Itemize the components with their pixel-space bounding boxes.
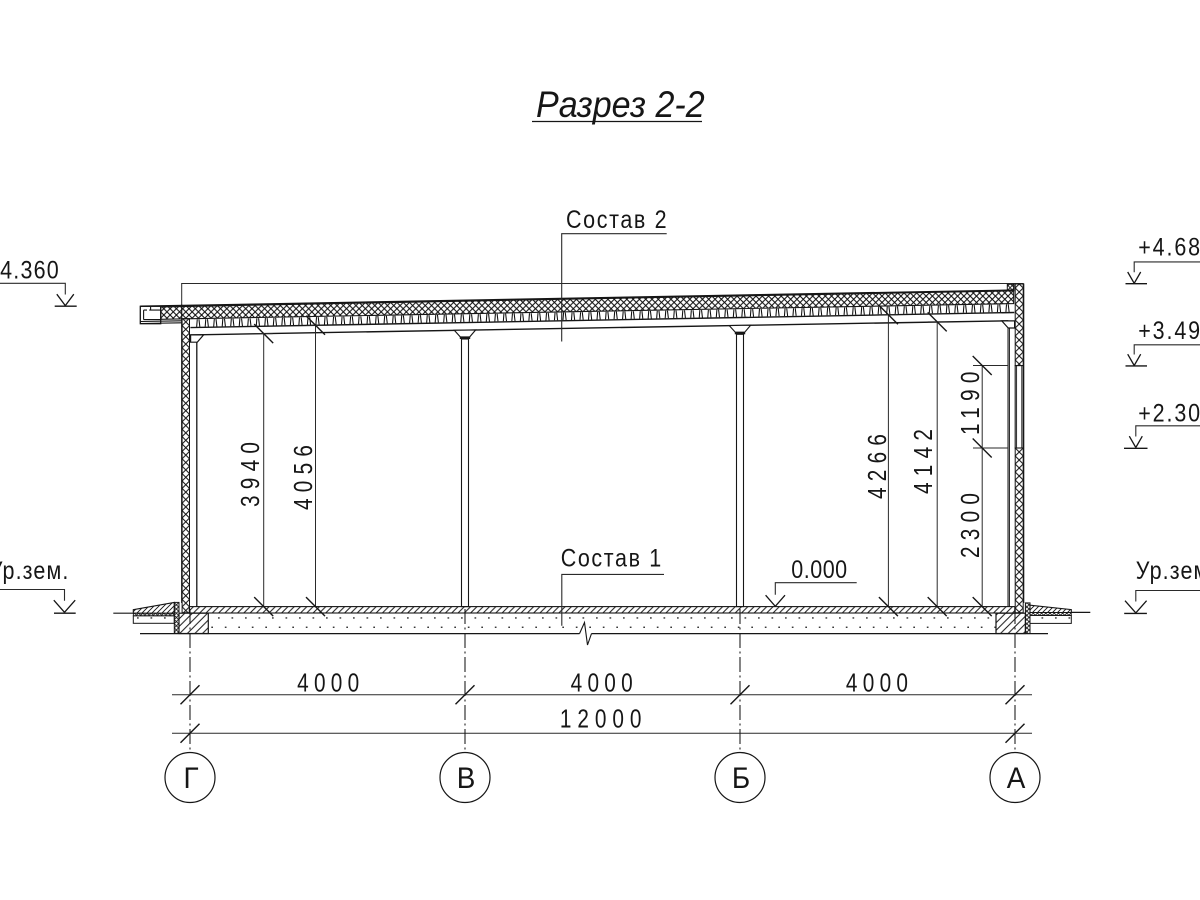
svg-text:А: А bbox=[1007, 762, 1026, 795]
svg-text:Разрез 2-2: Разрез 2-2 bbox=[536, 84, 705, 126]
svg-text:4266: 4266 bbox=[863, 428, 892, 499]
svg-text:В: В bbox=[457, 762, 476, 795]
svg-text:+4.68: +4.68 bbox=[1138, 233, 1200, 261]
svg-text:Ур.зем.: Ур.зем. bbox=[1136, 557, 1200, 585]
svg-text:2300: 2300 bbox=[956, 487, 985, 558]
svg-text:12000: 12000 bbox=[560, 704, 647, 733]
svg-text:Состав 2: Состав 2 bbox=[566, 206, 668, 234]
svg-text:4142: 4142 bbox=[909, 423, 938, 494]
svg-text:4000: 4000 bbox=[297, 668, 364, 697]
svg-text:Б: Б bbox=[732, 762, 750, 795]
svg-text:+3.49: +3.49 bbox=[1138, 316, 1200, 344]
svg-text:1190: 1190 bbox=[956, 365, 985, 435]
svg-text:0.000: 0.000 bbox=[791, 555, 847, 583]
svg-text:+4.360: +4.360 bbox=[0, 256, 60, 284]
svg-text:Состав 1: Состав 1 bbox=[561, 544, 663, 572]
svg-text:Г: Г bbox=[183, 762, 198, 795]
svg-text:Ур.зем.: Ур.зем. bbox=[0, 556, 69, 584]
svg-text:4000: 4000 bbox=[846, 668, 913, 697]
svg-text:+2.30: +2.30 bbox=[1138, 399, 1200, 427]
svg-text:4000: 4000 bbox=[571, 668, 638, 697]
svg-text:4056: 4056 bbox=[289, 439, 318, 510]
svg-text:3940: 3940 bbox=[236, 436, 265, 507]
